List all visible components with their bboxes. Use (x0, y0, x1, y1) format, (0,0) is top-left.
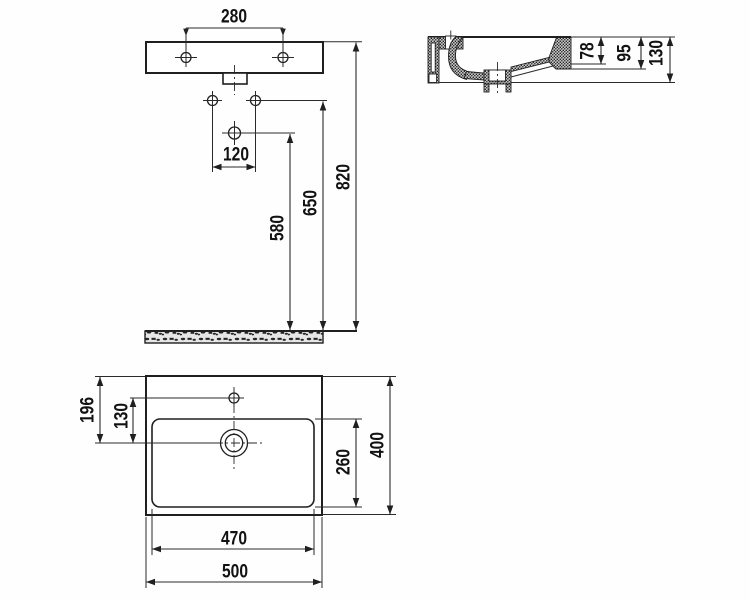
drain-section (484, 62, 511, 96)
dim-label-260: 260 (332, 449, 354, 475)
dim-label-78: 78 (576, 42, 598, 60)
dim-label-650: 650 (299, 190, 321, 216)
back-wall-recess (429, 74, 437, 83)
front-view: 280 120 (145, 5, 362, 343)
dim-label-95: 95 (613, 44, 635, 62)
dim-label-196: 196 (76, 397, 98, 423)
overflow-slot (431, 43, 435, 72)
bowl-bottom-shell (511, 58, 549, 72)
dim-260: 260 (332, 419, 356, 507)
dim-820: 820 (332, 43, 356, 331)
bowl-plan-outline (152, 419, 314, 507)
dim-95: 95 (613, 37, 641, 69)
dim-label-580: 580 (266, 215, 288, 241)
dim-400: 400 (366, 377, 390, 515)
trap-stub (223, 73, 247, 84)
plan-view: 196 130 260 400 470 500 (76, 376, 396, 588)
dim-130-side: 130 (645, 37, 670, 83)
dim-label-130-side: 130 (645, 40, 667, 66)
dim-label-500: 500 (222, 560, 248, 582)
trap-connector-section (464, 72, 484, 81)
technical-drawing-canvas: 280 120 (0, 0, 750, 600)
dim-196: 196 (76, 377, 100, 443)
dim-500: 500 (146, 560, 322, 582)
front-apron-section (549, 38, 571, 70)
dim-label-130-plan: 130 (110, 403, 132, 429)
dim-label-470: 470 (221, 527, 247, 549)
dim-78: 78 (576, 37, 601, 64)
dim-130-plan: 130 (110, 398, 133, 443)
dim-470: 470 (152, 527, 314, 549)
floor-section (145, 331, 357, 343)
dim-label-280: 280 (221, 5, 247, 27)
dim-650: 650 (299, 102, 323, 331)
side-section-view: 78 95 130 (428, 31, 675, 97)
washbasin-dimension-drawing: 280 120 (0, 0, 750, 600)
dim-label-820: 820 (332, 164, 354, 190)
dim-label-400: 400 (366, 432, 388, 458)
dim-label-120: 120 (223, 143, 249, 165)
dim-580: 580 (266, 134, 290, 330)
